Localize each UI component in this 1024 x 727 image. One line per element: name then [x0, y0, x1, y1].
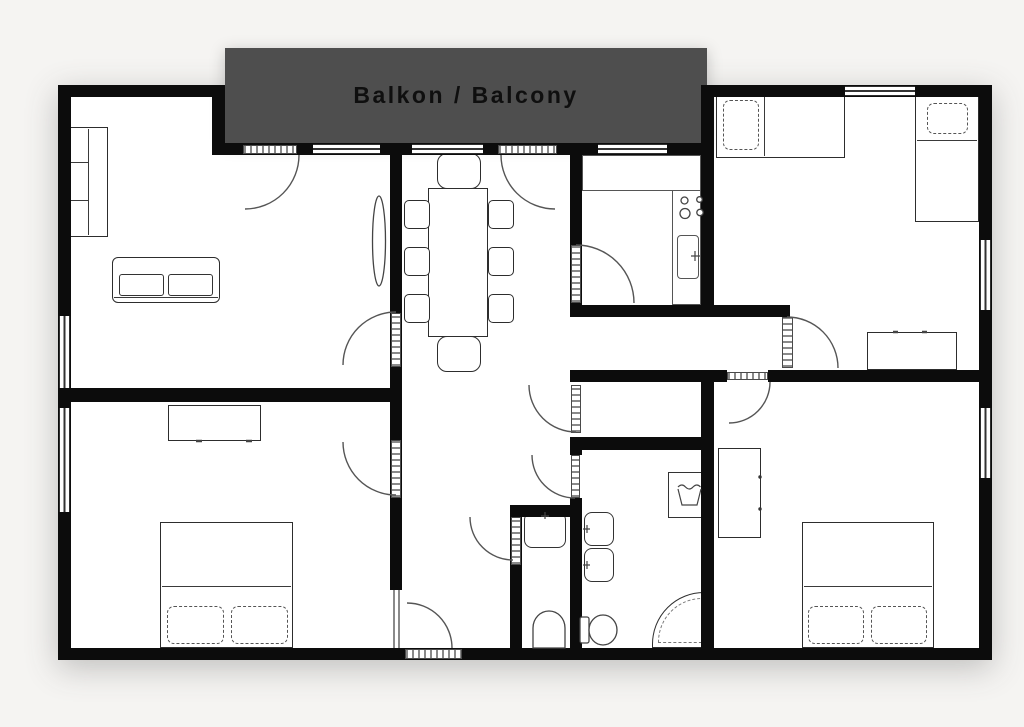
door-bedroom-br — [727, 372, 768, 380]
door-wc — [511, 517, 521, 565]
door-entrance — [405, 649, 462, 659]
wall-bath-west-b — [570, 498, 582, 660]
window-living-west — [59, 316, 70, 388]
window-living-balcony — [313, 144, 380, 154]
window-kitchen — [598, 144, 667, 154]
chair-top — [437, 153, 481, 189]
kitchen-counter-top — [582, 155, 701, 191]
chair-right-3 — [488, 294, 514, 323]
window-bedroom-bl-west — [59, 408, 70, 512]
chair-left-2 — [404, 247, 430, 276]
shelf-line-1 — [88, 129, 89, 235]
sideboard-tr — [867, 332, 957, 370]
door-closet — [571, 385, 581, 433]
single-bed-2-line — [917, 140, 977, 141]
sofa-cushion-2 — [168, 274, 213, 296]
dining-table — [428, 188, 488, 337]
wall-top-left — [58, 85, 225, 97]
door-balcony-dining — [498, 145, 557, 154]
wall-kitchen-south — [570, 305, 790, 317]
chair-right-1 — [488, 200, 514, 229]
chair-left-3 — [404, 294, 430, 323]
kitchen-sink — [677, 235, 699, 279]
double-bed-bl-line — [162, 586, 291, 587]
chair-right-2 — [488, 247, 514, 276]
balcony: Balkon / Balcony — [225, 48, 707, 143]
wall-corridor-south-e — [768, 370, 992, 382]
double-bed-br-pillow-2 — [871, 606, 927, 644]
floor-plan: Balkon / Balcony — [0, 0, 1024, 727]
door-bedroom-bl — [391, 440, 401, 498]
wall-bath-east — [701, 372, 714, 655]
wall-bath-north — [570, 437, 714, 450]
door-balcony-living — [243, 145, 297, 154]
double-bed-bl-pillow-1 — [167, 606, 224, 644]
dresser-bl — [168, 405, 261, 441]
wall-bottom — [58, 648, 992, 660]
window-bedroom-tr-east — [980, 240, 991, 310]
door-bedroom-tr — [782, 317, 793, 368]
bath-sink-1 — [584, 512, 614, 546]
wall-kitchen-east — [701, 85, 714, 317]
door-living-dining — [391, 313, 401, 367]
single-bed-1-pillow — [723, 100, 759, 150]
wall-v1-thin — [393, 590, 400, 648]
window-bedroom-tr-north — [845, 86, 915, 96]
wardrobe-br — [718, 448, 761, 538]
wc-sink — [524, 512, 566, 548]
door-bathroom — [571, 455, 580, 498]
window-dining-balcony — [412, 144, 483, 154]
single-bed-1-line — [764, 95, 765, 156]
single-bed-2-pillow — [927, 103, 968, 134]
balcony-label: Balkon / Balcony — [353, 82, 578, 109]
door-kitchen — [571, 245, 581, 303]
wall-living-bedroom — [58, 388, 402, 402]
double-bed-br-pillow-1 — [808, 606, 864, 644]
double-bed-bl-pillow-2 — [231, 606, 288, 644]
sofa-cushion-1 — [119, 274, 164, 296]
chair-bottom — [437, 336, 481, 372]
double-bed-br-line — [804, 586, 932, 587]
window-bedroom-br-east — [980, 408, 991, 478]
chair-left-1 — [404, 200, 430, 229]
bath-sink-2 — [584, 548, 614, 582]
wall-bath-west-a — [570, 437, 582, 455]
sofa-front-line — [114, 297, 218, 298]
